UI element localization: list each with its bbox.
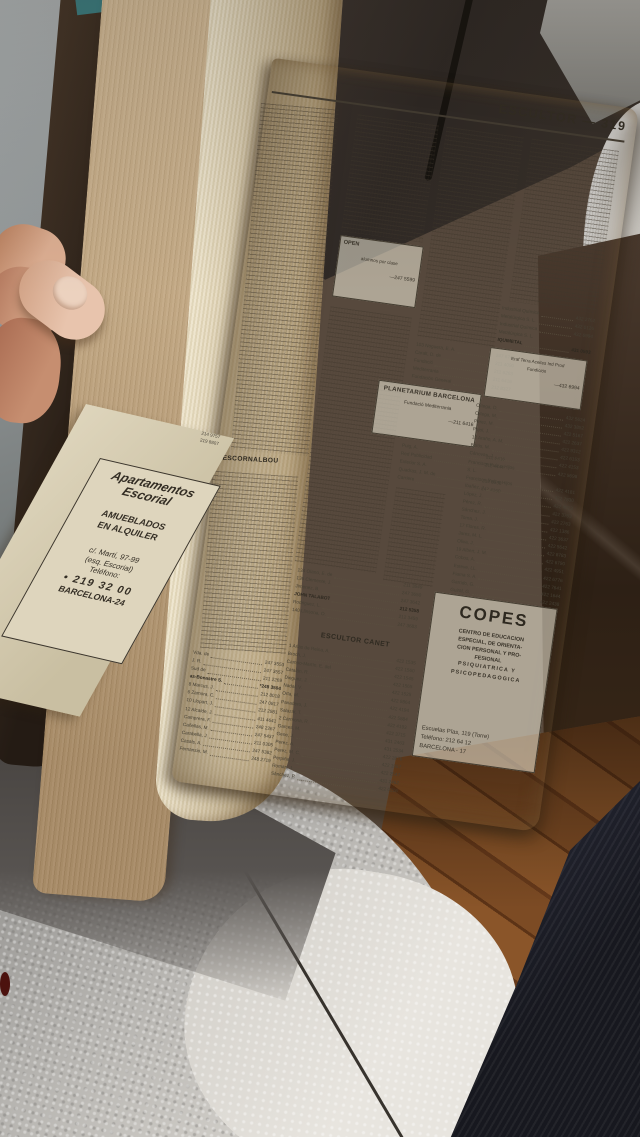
open-ad-phone: —247 5599 bbox=[339, 267, 415, 284]
copes-ad-text: CENTRO DE EDUCACION ESPECIAL, DE ORIENTA… bbox=[430, 624, 548, 688]
header-dash: — bbox=[582, 114, 603, 131]
copes-ad-box: COPES CENTRO DE EDUCACION ESPECIAL, DE O… bbox=[412, 592, 558, 774]
iquimetal-ad-box: Eraf Terra Aceites Ind Prod Fundición —4… bbox=[484, 347, 588, 410]
open-ad-line: alumnos por clase bbox=[341, 253, 417, 269]
red-speck bbox=[0, 972, 10, 996]
text-column-texture bbox=[341, 114, 439, 242]
text-column-texture bbox=[509, 139, 619, 314]
text-column-texture bbox=[200, 471, 298, 655]
copes-ad-footer: Escuelas Pías, 119 (Torre) Teléfono: 212… bbox=[419, 724, 534, 766]
open-ad-box: OPEN alumnos por clase —247 5599 bbox=[332, 235, 424, 308]
page-number: 319 bbox=[600, 116, 627, 133]
section-title: ESCULTOR bbox=[498, 102, 579, 127]
listing-column: 1 Arias de Reina, A.422 1535Broch, J.422… bbox=[270, 642, 416, 796]
section-escornalbou: ESCORNALBOU bbox=[222, 455, 314, 467]
listing-column: Vda. de247 3553J. R.247 3557Sud de211 22… bbox=[179, 649, 285, 766]
photo-of-phone-directory: ESCULTOR — 319 ESCORNALBOU Vda. de247 35… bbox=[0, 0, 640, 1137]
open-ad-title: OPEN bbox=[343, 240, 419, 257]
text-column-texture bbox=[383, 487, 446, 587]
